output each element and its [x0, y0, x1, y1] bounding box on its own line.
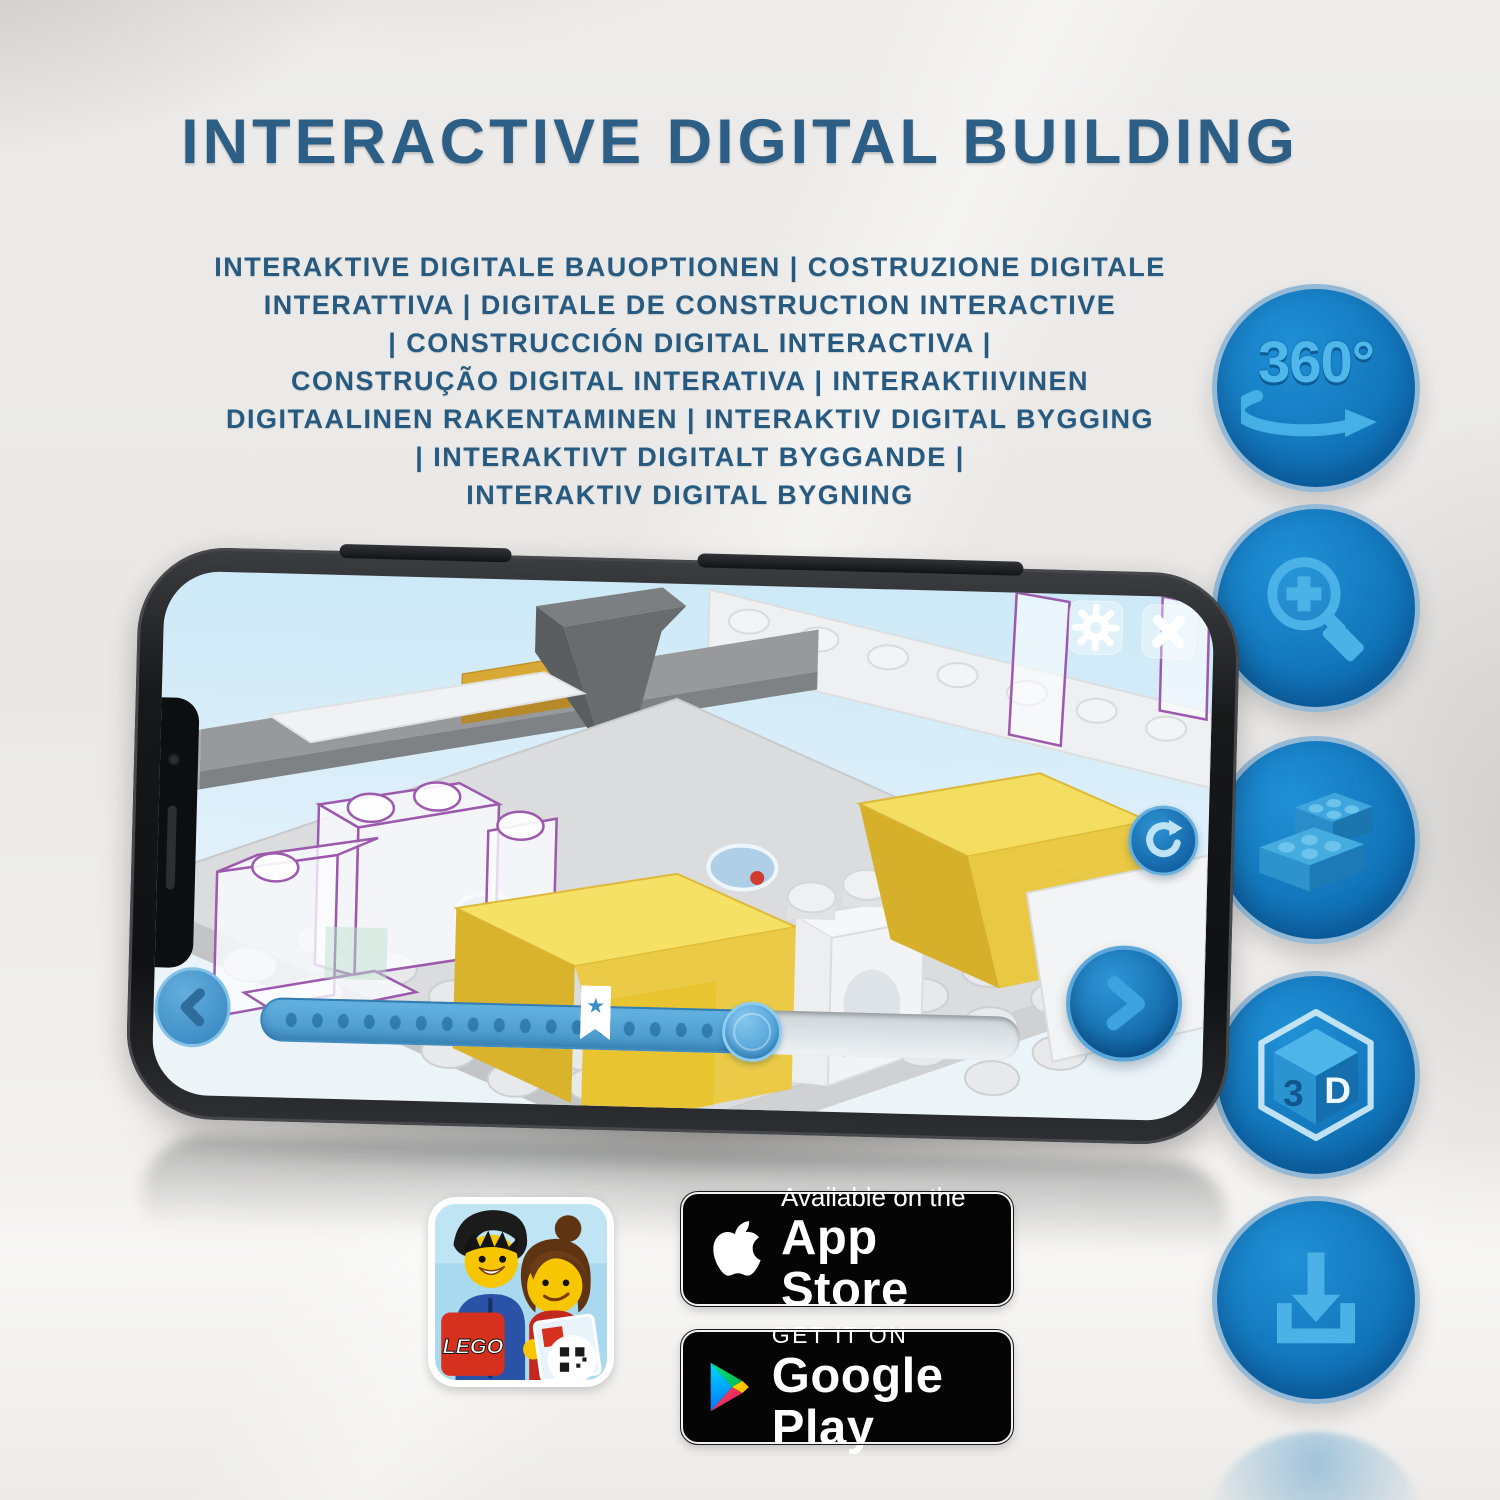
lego-app-artwork: LEGO: [435, 1204, 607, 1380]
360-degree-label: 360°: [1258, 338, 1374, 388]
subtitle-line: DIGITAALINEN RAKENTAMINEN | INTERAKTIV D…: [110, 400, 1270, 438]
lego-bricks-icon: [1253, 782, 1379, 898]
app-store-badge[interactable]: Available on the App Store: [681, 1192, 1013, 1306]
page-title: INTERACTIVE DIGITAL BUILDING: [10, 106, 1470, 178]
subtitle-line: INTERATTIVA | DIGITALE DE CONSTRUCTION I…: [110, 286, 1270, 324]
gear-icon: [1069, 600, 1122, 655]
google-play-tagline: GET IT ON: [772, 1320, 1011, 1350]
close-button[interactable]: [1141, 604, 1196, 659]
feature-zoom: [1212, 504, 1420, 712]
chevron-right-icon: [1099, 975, 1148, 1032]
app-store-text: Available on the App Store: [781, 1182, 1011, 1316]
lego-app-icon[interactable]: LEGO: [428, 1197, 614, 1387]
subtitle-line: INTERAKTIVE DIGITALE BAUOPTIONEN | COSTR…: [110, 248, 1270, 286]
close-icon: [1142, 604, 1195, 659]
feature-360-rotation: 360°: [1212, 284, 1420, 492]
progress-step-dots: [272, 1002, 764, 1049]
app-store-name: App Store: [781, 1212, 1011, 1316]
slider-handle-ring: [733, 1012, 772, 1051]
google-play-text: GET IT ON Google Play: [772, 1320, 1011, 1454]
subtitle-line: | CONSTRUCCIÓN DIGITAL INTERACTIVA |: [110, 324, 1270, 362]
feature-bricks: [1212, 736, 1420, 944]
rotation-arrow-icon: [1241, 388, 1391, 438]
download-icon: [1258, 1242, 1374, 1358]
smartphone: ★: [125, 546, 1242, 1147]
app-store-tagline: Available on the: [781, 1182, 1011, 1212]
google-play-icon: [707, 1357, 752, 1417]
subtitle-line: INTERAKTIV DIGITAL BYGNING: [110, 476, 1270, 514]
3d-cube-icon: 3 D: [1253, 1008, 1379, 1142]
cube-digit: 3: [1283, 1072, 1304, 1114]
apple-logo-icon: [707, 1216, 761, 1282]
subtitle-line: CONSTRUÇÃO DIGITAL INTERATIVA | INTERAKT…: [110, 362, 1270, 400]
settings-button[interactable]: [1068, 600, 1123, 655]
earpiece-speaker: [166, 806, 177, 890]
cube-letter: D: [1324, 1069, 1351, 1111]
zoom-in-icon: [1256, 548, 1376, 668]
chevron-left-icon: [175, 987, 210, 1028]
feature-download: [1212, 1196, 1420, 1404]
subtitle-line: | INTERAKTIVT DIGITALT BYGGANDE |: [110, 438, 1270, 476]
app-screen: ★: [151, 570, 1214, 1121]
lego-logo-text: LEGO: [442, 1334, 503, 1358]
poster: INTERACTIVE DIGITAL BUILDING INTERAKTIVE…: [0, 0, 1500, 1500]
rotate-icon: [1140, 817, 1187, 864]
front-camera: [168, 753, 180, 765]
google-play-badge[interactable]: GET IT ON Google Play: [681, 1330, 1013, 1444]
google-play-name: Google Play: [772, 1350, 1011, 1454]
multilingual-subtitle: INTERAKTIVE DIGITALE BAUOPTIONEN | COSTR…: [110, 248, 1270, 514]
